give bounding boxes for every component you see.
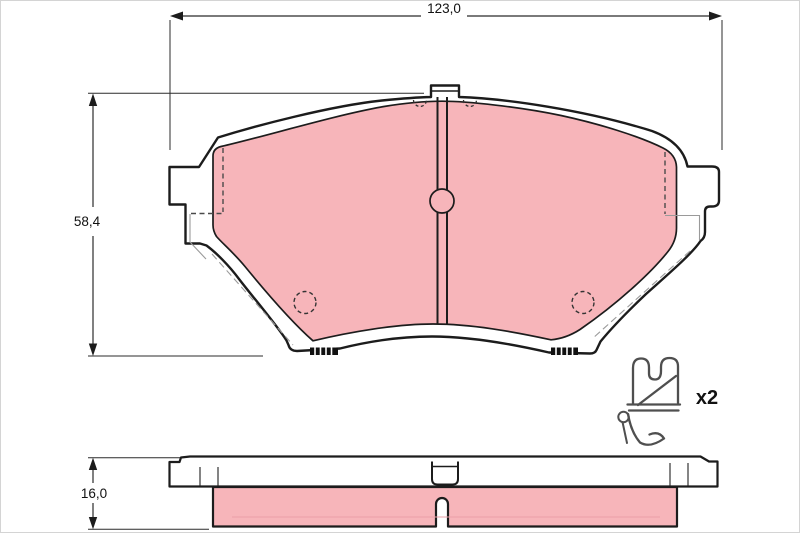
abutment-shim-left: [310, 348, 338, 356]
arrow-left-icon: [170, 12, 183, 21]
side-view: [170, 457, 718, 527]
drawing-canvas: 123,0 58,4: [0, 0, 800, 533]
retaining-clip: [618, 358, 680, 445]
side-locating-tab: [432, 462, 458, 485]
arrow-down-icon: [89, 517, 97, 529]
side-friction-material: [213, 487, 677, 527]
center-hole: [430, 189, 454, 213]
arrow-down-icon: [89, 344, 97, 357]
abutment-shim-right: [551, 348, 578, 356]
arrow-up-icon: [89, 94, 97, 107]
height-dimension-label: 58,4: [74, 214, 101, 229]
brake-pad-diagram: 123,0 58,4: [1, 1, 799, 532]
thickness-dimension-label: 16,0: [81, 486, 107, 501]
front-view: [170, 86, 720, 356]
clip-pin: [623, 422, 628, 443]
width-dimension-label: 123,0: [427, 1, 461, 16]
clip-tail: [628, 414, 664, 445]
friction-material: [213, 101, 677, 341]
clip-quantity-label: x2: [696, 387, 718, 409]
arrow-right-icon: [709, 12, 722, 21]
arrow-up-icon: [89, 458, 97, 470]
